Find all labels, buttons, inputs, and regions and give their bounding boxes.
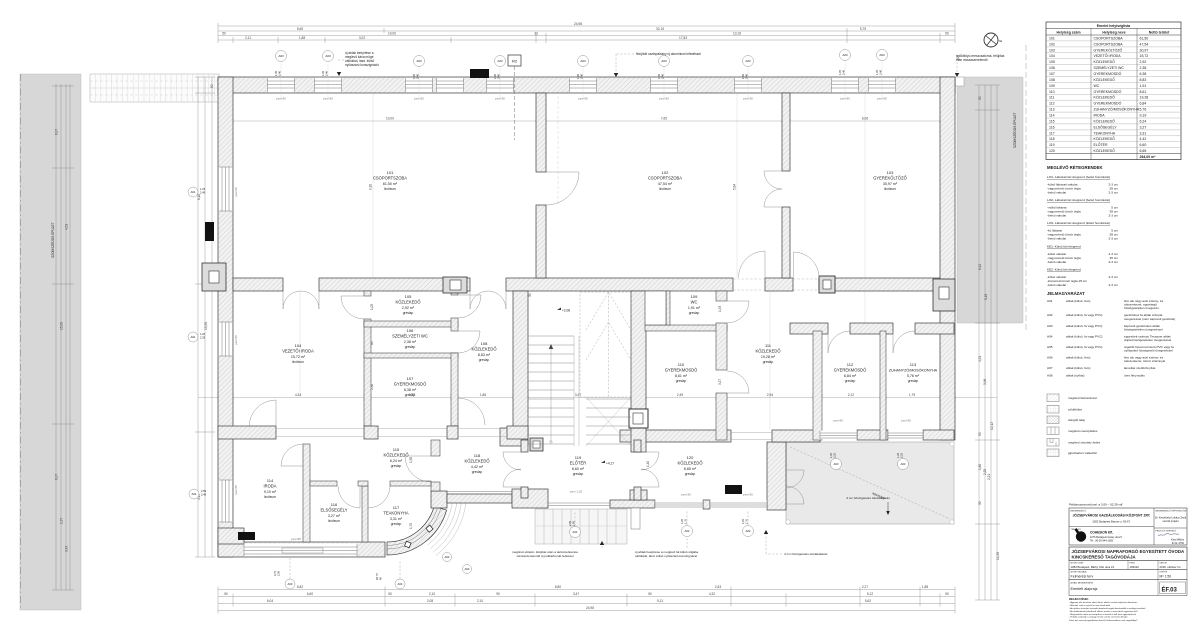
svg-text:pexi 80: pexi 80 (659, 97, 669, 101)
svg-text:50: 50 (388, 592, 392, 596)
svg-text:3,31: 3,31 (1140, 131, 1147, 135)
svg-text:4 cm hőszigetelés tokráttakará: 4 cm hőszigetelés tokráttakarás (784, 552, 828, 556)
svg-text:15,08: 15,08 (60, 322, 64, 330)
svg-text:2,40: 2,40 (325, 70, 329, 76)
svg-text:A02: A02 (1047, 313, 1053, 317)
svg-text:2,38 m²: 2,38 m² (404, 340, 417, 344)
svg-text:után visszaszerelendő: után visszaszerelendő (956, 58, 988, 62)
svg-text:hőszigeteletlen üvegezés: hőszigeteletlen üvegezés (1124, 306, 1159, 310)
svg-text:A04: A04 (445, 555, 450, 559)
svg-text:greslap: greslap (403, 311, 414, 315)
svg-text:10,00: 10,00 (386, 117, 394, 121)
svg-text:2,21: 2,21 (987, 474, 991, 480)
svg-text:ablak (külső, fa vagy PVC): ablak (külső, fa vagy PVC) (1066, 324, 1102, 328)
svg-text:6,38 m²: 6,38 m² (404, 388, 417, 392)
svg-text:112: 112 (1049, 102, 1055, 106)
svg-text:Kf01: Kf01 (243, 535, 250, 539)
svg-text:linóleum: linóleum (264, 495, 276, 499)
svg-text:Helyiség szám: Helyiség szám (1056, 30, 1080, 34)
svg-text:Kf02: Kf02 (730, 489, 738, 493)
svg-text:1,35: 1,35 (493, 73, 497, 79)
svg-text:A08: A08 (1047, 374, 1053, 378)
svg-text:2,40: 2,40 (278, 70, 282, 76)
svg-text:TEAKONYHA: TEAKONYHA (1094, 131, 1116, 135)
svg-text:2,40: 2,40 (661, 73, 665, 79)
svg-text:A03: A03 (325, 54, 331, 58)
svg-text:GYEREKMOSDÓ: GYEREKMOSDÓ (665, 368, 698, 373)
svg-text:19,28: 19,28 (1140, 96, 1149, 100)
svg-text:TEAKONYHA: TEAKONYHA (383, 511, 409, 516)
svg-text:váltókkal, lásd. külső nyílász: váltókkal, lásd. külső nyílászáró-konszi… (635, 554, 698, 558)
svg-text:pexi 80: pexi 80 (743, 493, 753, 497)
svg-text:50: 50 (945, 31, 949, 35)
svg-text:14,38: 14,38 (996, 552, 1000, 560)
svg-text:greslap: greslap (908, 379, 919, 383)
svg-text:KÖZLEKEDŐ: KÖZLEKEDŐ (1094, 136, 1116, 141)
svg-text:Kf01: Kf01 (209, 232, 213, 240)
svg-text:KE1- Külső fal rétegrend: KE1- Külső fal rétegrend (1047, 244, 1081, 248)
svg-text:A04: A04 (1047, 334, 1053, 338)
svg-text:MEGRENDELŐ KÉPVISELŐJE: MEGRENDELŐ KÉPVISELŐJE (1156, 510, 1188, 513)
svg-text:115: 115 (1049, 119, 1055, 123)
svg-text:MEGRENDELŐ: MEGRENDELŐ (1071, 510, 1087, 513)
svg-text:1,93: 1,93 (718, 306, 722, 312)
svg-text:2,49: 2,49 (200, 191, 206, 195)
svg-text:6,24 m²: 6,24 m² (390, 459, 403, 463)
svg-text:47,54 m²: 47,54 m² (658, 182, 673, 186)
svg-text:COHESION Kft.: COHESION Kft. (1090, 531, 1113, 535)
svg-text:ELŐTÉR: ELŐTÉR (570, 461, 586, 466)
svg-text:2,40: 2,40 (745, 73, 749, 79)
svg-text:103: 103 (887, 170, 894, 175)
svg-text:A03: A03 (580, 59, 586, 63)
svg-text:A01: A01 (191, 190, 196, 194)
svg-text:1083 Budapest, Báthy Ottó utca: 1083 Budapest, Báthy Ottó utca 31. (1071, 565, 1116, 569)
svg-text:2-3 cm: 2-3 cm (1109, 237, 1119, 241)
svg-text:A RAJZ MEGNEVEZÉSE: A RAJZ MEGNEVEZÉSE (1071, 582, 1094, 585)
svg-text:50: 50 (222, 31, 226, 35)
svg-text:15,98: 15,98 (204, 322, 208, 330)
svg-text:zöldfelület: zöldfelület (1068, 408, 1082, 412)
svg-text:109: 109 (1049, 84, 1055, 88)
svg-text:9,19: 9,19 (1140, 114, 1147, 118)
svg-text:3,47: 3,47 (573, 592, 579, 596)
svg-text:120: 120 (1049, 149, 1055, 153)
svg-text:6,06: 6,06 (862, 117, 868, 121)
svg-text:1,35: 1,35 (412, 73, 416, 79)
svg-text:ablak (nyílás): ablak (nyílás) (1066, 374, 1084, 378)
svg-text:6,60: 6,60 (1140, 143, 1147, 147)
svg-text:greslap: greslap (391, 522, 402, 526)
svg-text:118: 118 (1049, 137, 1055, 141)
svg-text:6,60: 6,60 (307, 592, 313, 596)
svg-text:CSOPORTSZOBA: CSOPORTSZOBA (1094, 36, 1124, 40)
svg-text:2,27: 2,27 (862, 585, 868, 589)
svg-text:A03: A03 (416, 59, 422, 63)
svg-text:pexi 80: pexi 80 (234, 187, 238, 197)
svg-text:greslap: greslap (689, 311, 700, 315)
svg-text:117: 117 (393, 505, 400, 510)
svg-text:5,76 m²: 5,76 m² (907, 374, 920, 378)
svg-text:greslap: greslap (405, 345, 416, 349)
svg-text:döngölt talaj: döngölt talaj (1068, 418, 1085, 422)
svg-text:nyílászáró konszignáció: nyílászáró konszignáció (345, 63, 379, 67)
svg-text:pexi 80: pexi 80 (323, 97, 333, 101)
svg-text:üvegezéssel (nem kapcsolt geré: üvegezéssel (nem kapcsolt gerébtok) (1124, 317, 1175, 321)
svg-text:KÖZLEKEDŐ: KÖZLEKEDŐ (1094, 59, 1116, 64)
svg-text:greslap: greslap (391, 464, 402, 468)
svg-text:- Ágyazat jelű terveken eltérő: - Ágyazat jelű terveken eltérő lehet, el… (1069, 601, 1138, 604)
svg-text:2,11: 2,11 (245, 36, 251, 40)
svg-text:KÖZLEKEDŐ: KÖZLEKEDŐ (464, 459, 489, 464)
svg-text:9,10: 9,10 (369, 184, 373, 190)
svg-text:8,97: 8,97 (55, 129, 59, 135)
svg-text:1,88: 1,88 (922, 585, 928, 589)
svg-text:Dr. Keszthelyi-Lukács Zsolt: Dr. Keszthelyi-Lukács Zsolt (1155, 516, 1187, 520)
svg-text:A03: A03 (278, 54, 284, 58)
svg-text:WC: WC (1094, 84, 1100, 88)
svg-text:109322: 109322 (1130, 565, 1140, 569)
svg-text:MEGJEGYZÉSEK:: MEGJEGYZÉSEK: (1069, 598, 1089, 601)
svg-text:1,25: 1,25 (680, 518, 684, 524)
svg-text:GYEREKÖLTÖZŐ: GYEREKÖLTÖZŐ (873, 176, 907, 181)
svg-text:2,25: 2,25 (833, 452, 837, 458)
svg-text:6,60 m²: 6,60 m² (572, 467, 585, 471)
svg-text:A05: A05 (1047, 345, 1053, 349)
svg-text:KÖZLEKEDŐ: KÖZLEKEDŐ (395, 300, 420, 305)
svg-text:JELMAGYARÁZAT: JELMAGYARÁZAT (1047, 291, 1085, 296)
svg-text:pexi 80: pexi 80 (681, 493, 691, 497)
svg-text:L/03- Lábazati fal rétegrend (: L/03- Lábazati fal rétegrend (külső homl… (1047, 221, 1110, 225)
svg-text:1,35: 1,35 (321, 70, 325, 76)
svg-text:2,10: 2,10 (477, 599, 483, 603)
svg-text:113: 113 (910, 362, 917, 367)
svg-text:ablak (külső, fa vagy PVC): ablak (külső, fa vagy PVC) (1066, 334, 1102, 338)
svg-text:A03: A03 (879, 53, 885, 57)
svg-text:pexi 80: pexi 80 (877, 97, 887, 101)
svg-text:30,97 m²: 30,97 m² (883, 182, 898, 186)
svg-text:6,65: 6,65 (1140, 149, 1147, 153)
svg-text:8,80: 8,80 (555, 585, 561, 589)
svg-text:A03: A03 (834, 462, 839, 466)
svg-text:L/01- Lábazati fal rétegrend (: L/01- Lábazati fal rétegrend (belső homl… (1047, 175, 1110, 179)
svg-text:264,00 m²: 264,00 m² (1140, 155, 1157, 159)
svg-text:110: 110 (678, 362, 685, 367)
svg-text:ZUHANYZÓ/MOSÓKONYHA: ZUHANYZÓ/MOSÓKONYHA (889, 368, 938, 373)
svg-text:102: 102 (1049, 42, 1055, 46)
svg-text:113: 113 (1049, 108, 1055, 112)
svg-text:meglévő cserépfedés: meglévő cserépfedés (1068, 429, 1098, 433)
svg-text:30: 30 (978, 501, 982, 505)
svg-text:2,10: 2,10 (429, 592, 435, 596)
svg-text:19,28 m²: 19,28 m² (761, 355, 776, 359)
svg-text:pexi 80: pexi 80 (833, 419, 843, 423)
svg-text:5,75: 5,75 (860, 27, 866, 31)
svg-text:1,05: 1,05 (370, 304, 374, 310)
svg-text:116: 116 (1049, 125, 1055, 129)
svg-text:24,98: 24,98 (574, 22, 582, 26)
svg-text:IRODA: IRODA (1094, 114, 1106, 118)
svg-text:pexi 80: pexi 80 (414, 97, 424, 101)
svg-text:2,92 m²: 2,92 m² (402, 306, 415, 310)
svg-text:2-3 cm: 2-3 cm (1109, 214, 1119, 218)
svg-text:33: 33 (534, 31, 538, 35)
svg-text:116: 116 (331, 502, 338, 507)
svg-text:1,80: 1,80 (978, 464, 982, 470)
svg-text:2,37: 2,37 (60, 518, 64, 524)
svg-text:50: 50 (224, 592, 228, 596)
svg-text:A01: A01 (573, 530, 578, 534)
svg-text:KINCSKERESŐ TAGÓVODÁJA: KINCSKERESŐ TAGÓVODÁJA (1072, 554, 1137, 559)
svg-text:6,84: 6,84 (1140, 102, 1147, 106)
svg-text:1,25: 1,25 (896, 452, 900, 458)
svg-text:M= 1:50: M= 1:50 (1160, 574, 1172, 578)
svg-text:1,91: 1,91 (1140, 84, 1147, 88)
svg-text:Helyiség neve: Helyiség neve (1102, 30, 1125, 34)
svg-text:KÖZLEKEDŐ: KÖZLEKEDŐ (1094, 148, 1116, 153)
svg-text:50: 50 (210, 84, 214, 88)
svg-text:GYEREKMOSDÓ: GYEREKMOSDÓ (1094, 89, 1122, 94)
svg-text:3,27: 3,27 (718, 379, 722, 385)
svg-text:30: 30 (528, 293, 532, 297)
svg-text:3,02: 3,02 (359, 36, 365, 40)
svg-text:- Megszakítás utáni visszaépít: - Megszakítás utáni visszaépítésre a ter… (1069, 613, 1137, 616)
svg-text:103: 103 (1049, 48, 1055, 52)
svg-text:2,40: 2,40 (497, 73, 501, 79)
svg-text:8,97: 8,97 (55, 474, 59, 480)
svg-text:GYEREKMOSDÓ: GYEREKMOSDÓ (834, 368, 867, 373)
svg-text:1,35: 1,35 (576, 73, 580, 79)
svg-text:61,50: 61,50 (1140, 36, 1149, 40)
svg-text:greslap: greslap (472, 470, 483, 474)
svg-text:105: 105 (1049, 60, 1055, 64)
svg-text:linóleum: linóleum (328, 519, 340, 523)
svg-text:gipszkarton válaszfal: gipszkarton válaszfal (1068, 451, 1097, 455)
svg-text:101: 101 (1049, 36, 1055, 40)
svg-text:greslap: greslap (573, 472, 584, 476)
svg-text:1,05: 1,05 (838, 69, 842, 75)
svg-text:A02: A02 (685, 529, 690, 533)
svg-text:2-3 cm: 2-3 cm (1109, 275, 1119, 279)
svg-text:1,88: 1,88 (299, 36, 305, 40)
svg-text:1,05: 1,05 (875, 69, 879, 75)
svg-text:50: 50 (978, 96, 982, 100)
svg-text:A03: A03 (661, 59, 667, 63)
svg-text:10,00: 10,00 (388, 31, 396, 35)
svg-text:CSOPORTSZOBA: CSOPORTSZOBA (373, 176, 407, 181)
svg-text:-belső vakolat: -belső vakolat (1047, 283, 1066, 287)
svg-text:47,54: 47,54 (1140, 42, 1149, 46)
svg-text:GYEREKMOSDÓ: GYEREKMOSDÓ (1094, 101, 1122, 106)
svg-text:pexi 85: pexi 85 (234, 485, 238, 495)
svg-text:6,10: 6,10 (197, 194, 201, 200)
svg-text:111: 111 (1049, 96, 1054, 100)
svg-text:SZOMSZÉDOS ÉPÜLET: SZOMSZÉDOS ÉPÜLET (50, 222, 55, 258)
svg-text:ELSŐSEGÉLY: ELSŐSEGÉLY (320, 508, 347, 513)
svg-text:linóleum: linóleum (659, 187, 671, 191)
svg-text:KÉ01: KÉ01 (475, 72, 484, 77)
svg-text:JÓZSEFVÁROSI GAZDÁLKODÁSI KÖZP: JÓZSEFVÁROSI GAZDÁLKODÁSI KÖZPONT ZRT. (1073, 513, 1151, 518)
svg-text:1,35: 1,35 (274, 70, 278, 76)
svg-text:106: 106 (407, 328, 414, 333)
svg-text:pexi 80: pexi 80 (276, 97, 286, 101)
svg-text:110: 110 (1049, 90, 1055, 94)
svg-text:4,42: 4,42 (1140, 137, 1147, 141)
svg-text:A01: A01 (191, 335, 196, 339)
svg-text:A03: A03 (497, 59, 503, 63)
svg-text:CSOPORTSZOBA: CSOPORTSZOBA (648, 176, 682, 181)
svg-text:KÖZLEKEDŐ: KÖZLEKEDŐ (1094, 118, 1116, 123)
svg-text:greslap: greslap (845, 379, 856, 383)
svg-text:A03: A03 (1047, 324, 1053, 328)
svg-text:KÖZLEKEDŐ: KÖZLEKEDŐ (1094, 95, 1116, 100)
svg-text:- Az átalakításnál jelentkező: - Az átalakításnál jelentkező eltérés es… (1069, 610, 1138, 613)
svg-text:ELSŐSEGÉLY: ELSŐSEGÉLY (1094, 124, 1118, 129)
svg-text:ZUHANYZÓ/MOSÓKONYHA: ZUHANYZÓ/MOSÓKONYHA (1094, 107, 1140, 112)
svg-text:pexi 80: pexi 80 (840, 97, 850, 101)
svg-text:1,25: 1,25 (829, 452, 833, 458)
svg-text:30,97: 30,97 (1140, 48, 1149, 52)
svg-text:6,82: 6,82 (297, 585, 303, 589)
svg-text:12,12: 12,12 (990, 422, 994, 430)
svg-text:2,12: 2,12 (848, 393, 854, 397)
svg-text:15,72 m²: 15,72 m² (291, 355, 306, 359)
svg-text:K0 75: K0 75 (375, 573, 379, 580)
svg-text:2,09: 2,09 (568, 520, 572, 526)
svg-text:ablak (külső, fa vagy PVC): ablak (külső, fa vagy PVC) (1066, 345, 1102, 349)
svg-text:WC: WC (691, 300, 698, 305)
svg-text:2,40: 2,40 (416, 73, 420, 79)
svg-text:pexi 80: pexi 80 (578, 97, 588, 101)
svg-text:+2,08: +2,08 (562, 309, 570, 313)
svg-text:1,35: 1,35 (657, 73, 661, 79)
svg-text:meglévő zsindely fedés: meglévő zsindely fedés (1068, 441, 1101, 445)
svg-text:13,16: 13,16 (733, 31, 741, 35)
svg-text:KÖZLEKEDŐ: KÖZLEKEDŐ (471, 347, 496, 352)
svg-text:+4,17: +4,17 (606, 462, 614, 466)
svg-text:greslap: greslap (405, 393, 416, 397)
svg-text:107: 107 (1049, 72, 1055, 76)
svg-text:1,79: 1,79 (909, 393, 915, 397)
svg-text:111: 111 (765, 343, 772, 348)
svg-text:101: 101 (387, 170, 394, 175)
svg-text:2,39: 2,39 (200, 336, 206, 340)
svg-text:linóleum: linóleum (384, 187, 396, 191)
svg-text:KÖZLEKEDŐ: KÖZLEKEDŐ (677, 461, 702, 466)
svg-text:IRODA: IRODA (264, 484, 277, 489)
svg-text:109: 109 (691, 294, 698, 299)
svg-text:SZOMSZÉDOS ÉPÜLET: SZOMSZÉDOS ÉPÜLET (1012, 112, 1017, 148)
svg-text:2,92: 2,92 (1140, 60, 1147, 64)
svg-text:greslap: greslap (685, 472, 696, 476)
svg-text:dupla hőszigeteletlen üvegezés: dupla hőszigeteletlen üvegezéssel (1124, 338, 1171, 342)
svg-text:50: 50 (648, 592, 652, 596)
svg-text:3,31 m²: 3,31 m² (390, 517, 403, 521)
svg-text:4,42 m²: 4,42 m² (471, 465, 484, 469)
svg-text:6,04: 6,04 (267, 599, 273, 603)
svg-text:pexi 80: pexi 80 (743, 97, 753, 101)
svg-text:KÖZLEKEDŐ: KÖZLEKEDŐ (755, 349, 780, 354)
svg-text:1,70: 1,70 (409, 523, 413, 529)
svg-text:3,43: 3,43 (65, 546, 69, 552)
svg-text:linóleum: linóleum (292, 360, 304, 364)
svg-text:50: 50 (978, 432, 982, 436)
svg-text:meglévő falszerkezet: meglévő falszerkezet (1068, 396, 1097, 400)
svg-text:KÖZLEKEDŐ: KÖZLEKEDŐ (383, 453, 408, 458)
svg-text:2,49: 2,49 (677, 393, 683, 397)
svg-text:108: 108 (481, 341, 488, 346)
svg-text:2,40: 2,40 (879, 69, 883, 75)
svg-text:32,15: 32,15 (656, 27, 664, 31)
svg-text:A TERV FAJTÁJA: A TERV FAJTÁJA (1071, 570, 1088, 573)
svg-text:ablak (külső, fém): ablak (külső, fém) (1066, 299, 1090, 303)
svg-text:17,83: 17,83 (679, 36, 687, 40)
svg-text:24,98: 24,98 (586, 606, 594, 610)
svg-text:- Feladó eszközök a szakági te: - Feladó eszközök a szakági tervek szeri… (1069, 616, 1128, 619)
svg-text:A03: A03 (842, 53, 848, 57)
svg-text:8,18: 8,18 (984, 294, 988, 300)
svg-text:1,91 m²: 1,91 m² (688, 306, 701, 310)
svg-text:3,96: 3,96 (983, 379, 987, 385)
svg-text:CSOPORTSZOBA: CSOPORTSZOBA (1094, 42, 1124, 46)
svg-text:104: 104 (295, 343, 302, 348)
svg-text:2-3 cm: 2-3 cm (1109, 260, 1119, 264)
svg-text:8,61 m²: 8,61 m² (675, 374, 688, 378)
svg-text:106: 106 (1049, 66, 1055, 70)
svg-text:90: 90 (496, 592, 500, 596)
svg-text:2,08: 2,08 (427, 599, 433, 603)
svg-text:-belső vakolat: -belső vakolat (1047, 191, 1066, 195)
svg-text:114: 114 (1049, 114, 1055, 118)
svg-text:GYEREKÖLTÖZŐ: GYEREKÖLTÖZŐ (1094, 47, 1123, 52)
svg-text:5,65: 5,65 (297, 27, 303, 31)
svg-text:pexi 80: pexi 80 (234, 335, 238, 345)
svg-text:pexi 1,25: pexi 1,25 (570, 490, 583, 494)
svg-text:ablak (külső, fém): ablak (külső, fém) (1066, 356, 1090, 360)
svg-text:ablak (külső, fém): ablak (külső, fém) (1066, 366, 1090, 370)
svg-text:1,86: 1,86 (480, 393, 486, 397)
svg-text:SZEMÉLYZETI WC: SZEMÉLYZETI WC (392, 334, 428, 339)
svg-text:GYEREKMOSDÓ: GYEREKMOSDÓ (1094, 71, 1122, 76)
svg-text:Emeleti alaprajz: Emeleti alaprajz (1071, 587, 1098, 591)
svg-text:4,34: 4,34 (295, 393, 301, 397)
svg-text:9,11: 9,11 (657, 599, 663, 603)
svg-text:4 cm hőszigetelés tokráttakará: 4 cm hőszigetelés tokráttakarás (846, 496, 890, 500)
svg-text:3,27: 3,27 (1140, 125, 1147, 129)
svg-text:JÓZSEFVÁROSI NAPRAFORGÓ EGYESÍ: JÓZSEFVÁROSI NAPRAFORGÓ EGYESÍTETT ÓVODA (1072, 549, 1186, 554)
svg-text:3,47: 3,47 (575, 393, 581, 397)
svg-text:105: 105 (405, 294, 412, 299)
svg-text:A03: A03 (901, 462, 906, 466)
svg-text:SZEMÉLYZETI WC: SZEMÉLYZETI WC (1094, 65, 1125, 70)
svg-text:greslap: greslap (676, 379, 687, 383)
svg-text:8,83 m²: 8,83 m² (478, 353, 491, 357)
svg-text:115: 115 (393, 447, 400, 452)
svg-text:- Méretek csak a rajzról le ne: - Méretek csak a rajzról le nem olvashat… (1069, 604, 1111, 607)
svg-text:1,26: 1,26 (200, 332, 206, 336)
svg-text:5,12: 5,12 (867, 592, 873, 596)
svg-text:pexi 85: pexi 85 (291, 537, 301, 541)
svg-text:3,75: 3,75 (273, 570, 277, 576)
svg-text:15,72: 15,72 (1140, 54, 1149, 58)
svg-text:2,40: 2,40 (842, 69, 846, 75)
svg-text:greslap: greslap (479, 358, 490, 362)
svg-text:tokszerkezet, tömör szárnnyal: tokszerkezet, tömör szárnnyal (1124, 359, 1165, 363)
svg-text:8,83: 8,83 (1140, 78, 1147, 82)
svg-text:lamellás szellőzőnyílás: lamellás szellőzőnyílás (1124, 366, 1156, 370)
svg-text:A01: A01 (1047, 299, 1053, 303)
svg-text:8,12: 8,12 (978, 264, 982, 270)
